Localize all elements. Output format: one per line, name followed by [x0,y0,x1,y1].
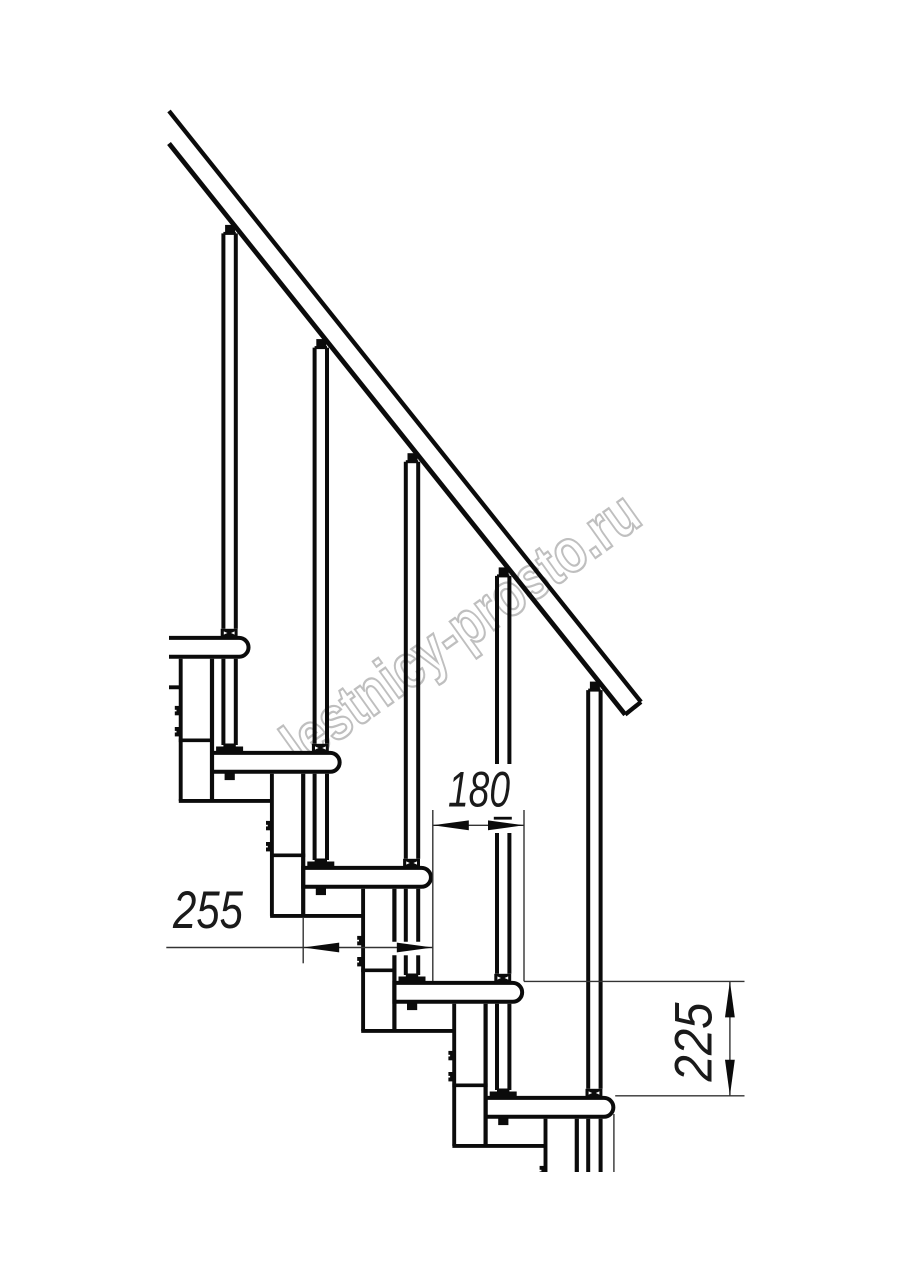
svg-text:225: 225 [665,1002,724,1082]
svg-text:255: 255 [172,881,243,940]
svg-text:180: 180 [448,762,510,818]
